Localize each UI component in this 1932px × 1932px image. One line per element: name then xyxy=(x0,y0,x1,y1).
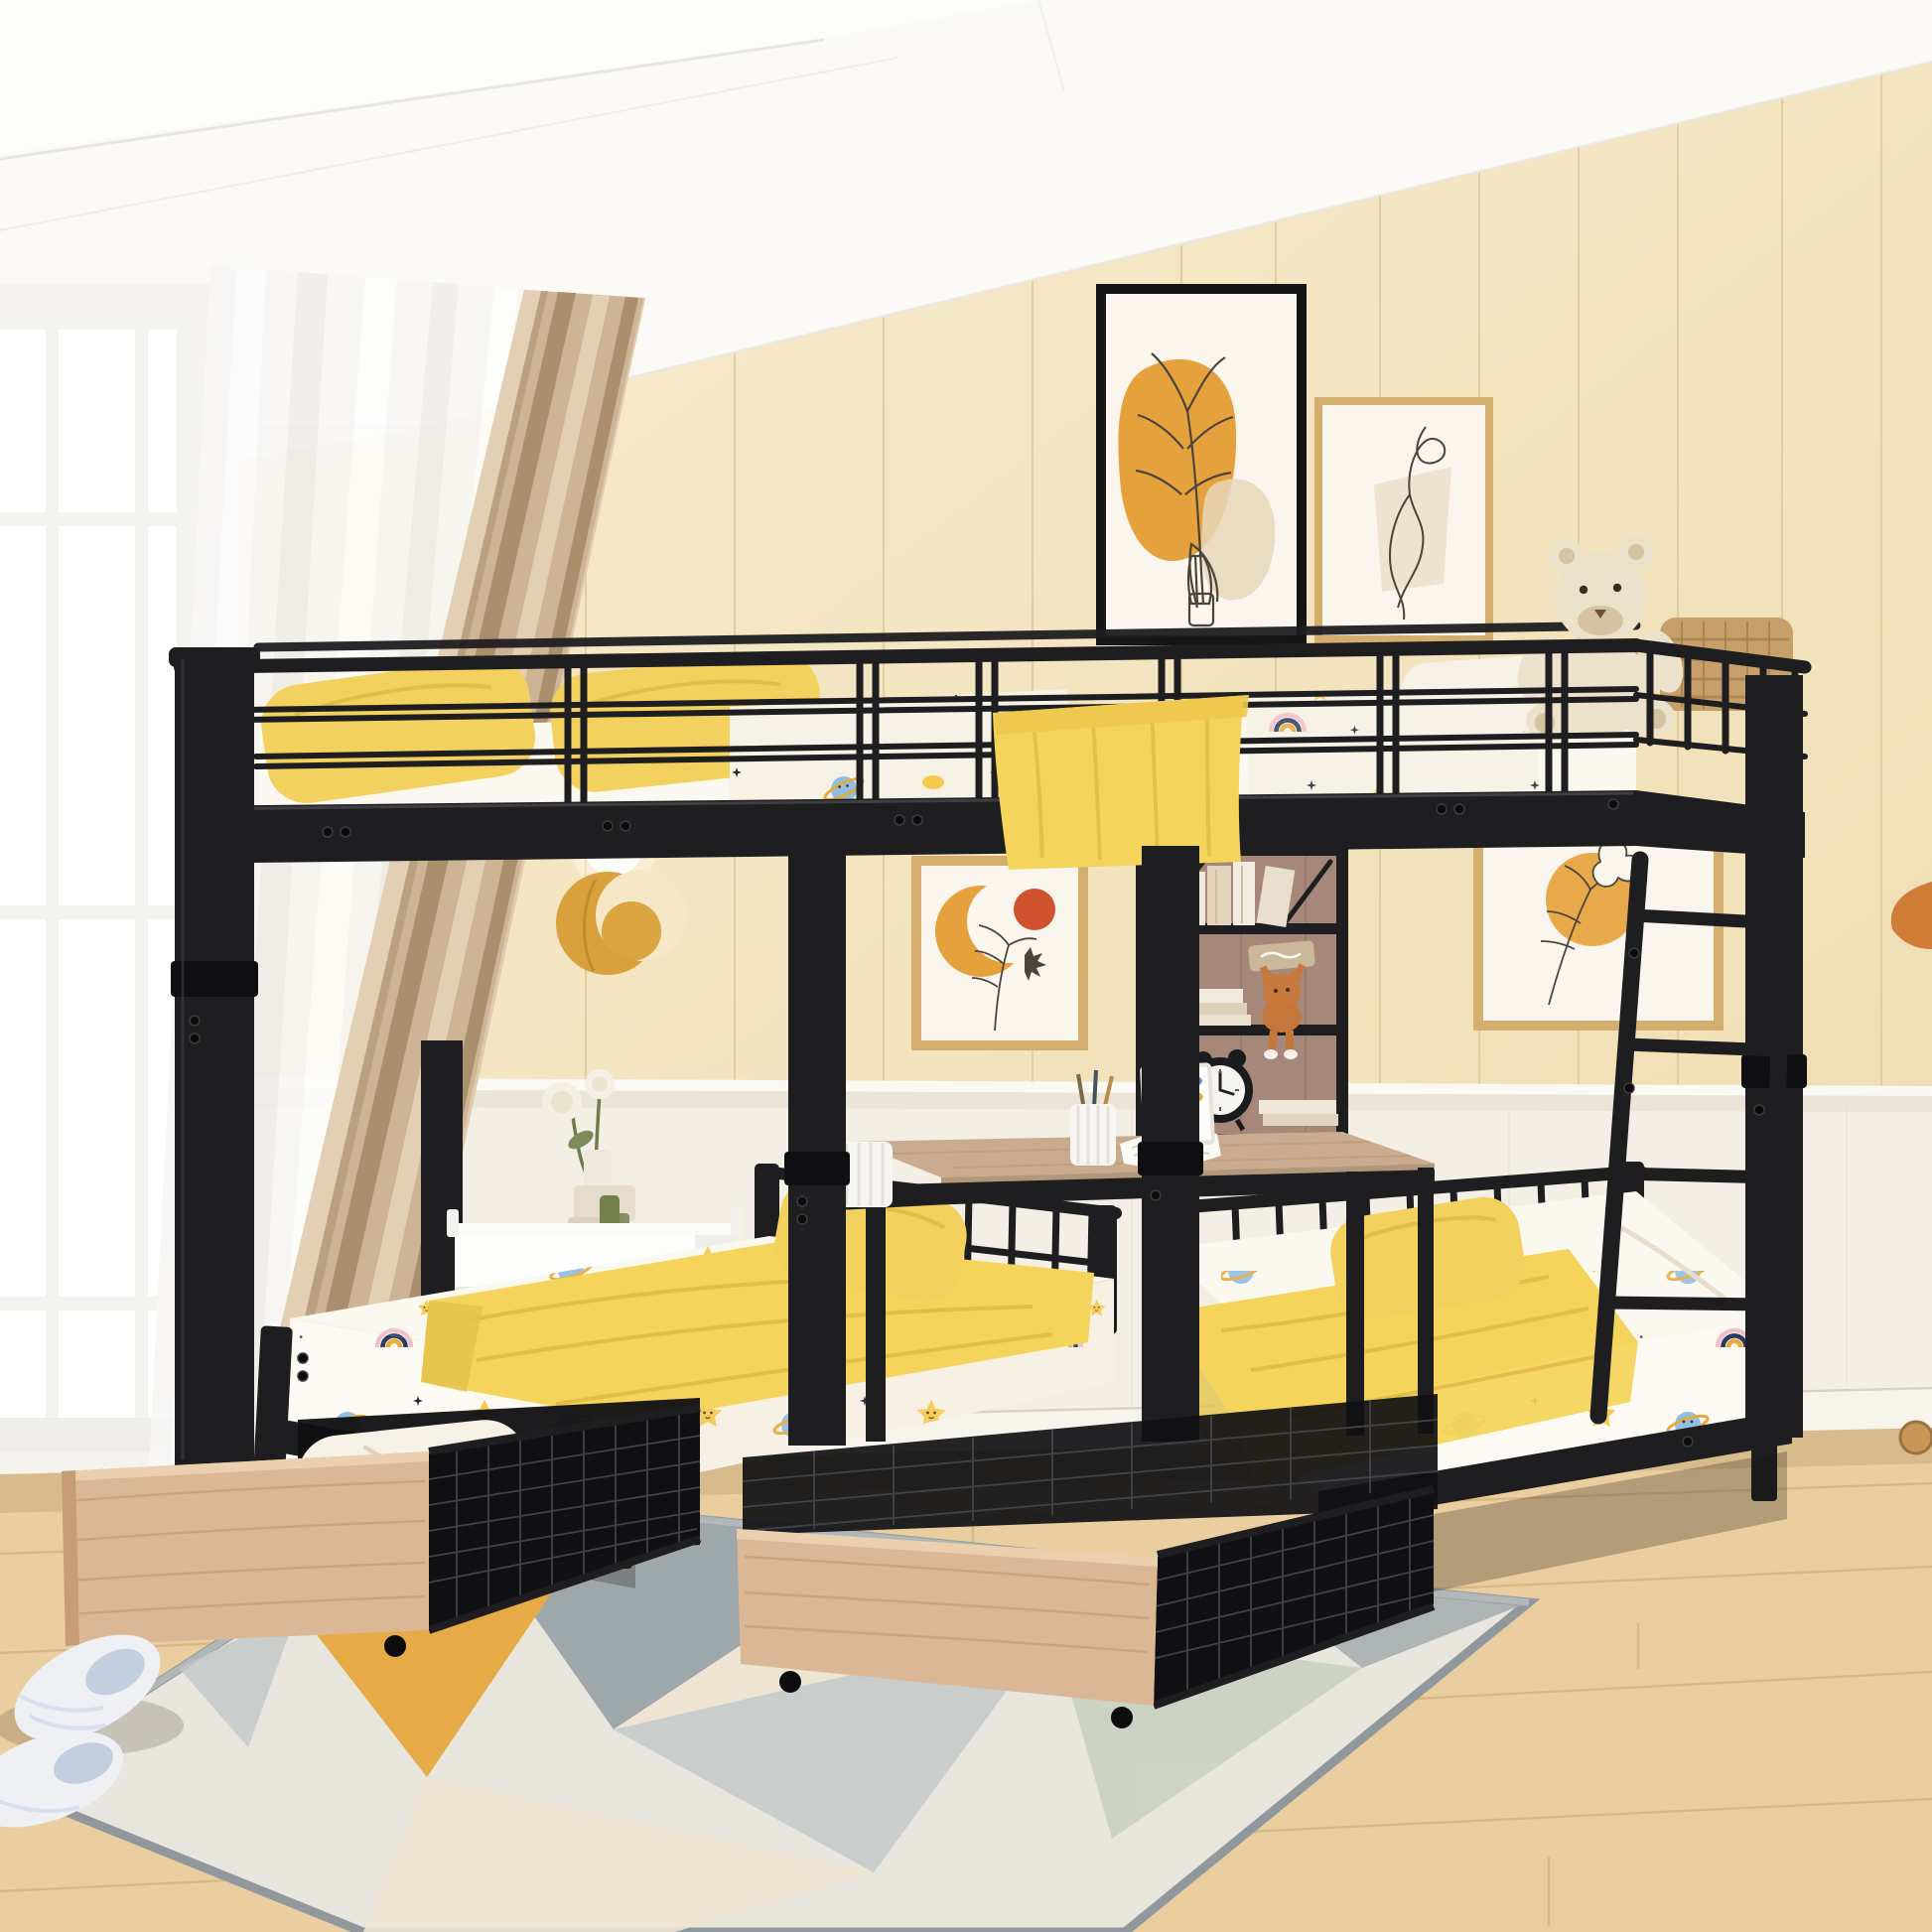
artwork-moon xyxy=(911,856,1088,1050)
drawer-left-front xyxy=(62,1451,429,1646)
caster-wheel xyxy=(384,1635,406,1657)
caster-wheel xyxy=(779,1671,801,1693)
window-glass xyxy=(0,330,177,1430)
bedroom-product-photo xyxy=(0,0,1932,1932)
door-stopper xyxy=(1900,1422,1932,1453)
caster-wheel xyxy=(1111,1707,1133,1728)
artwork-leaf-vase xyxy=(1096,284,1307,645)
shelf-books-bottom xyxy=(1259,1100,1338,1126)
upper-blanket-drape xyxy=(993,695,1249,870)
artwork-figure xyxy=(1314,397,1493,643)
post-left xyxy=(175,655,254,1467)
scene-canvas xyxy=(0,0,1932,1932)
post-center-left xyxy=(788,854,846,1446)
